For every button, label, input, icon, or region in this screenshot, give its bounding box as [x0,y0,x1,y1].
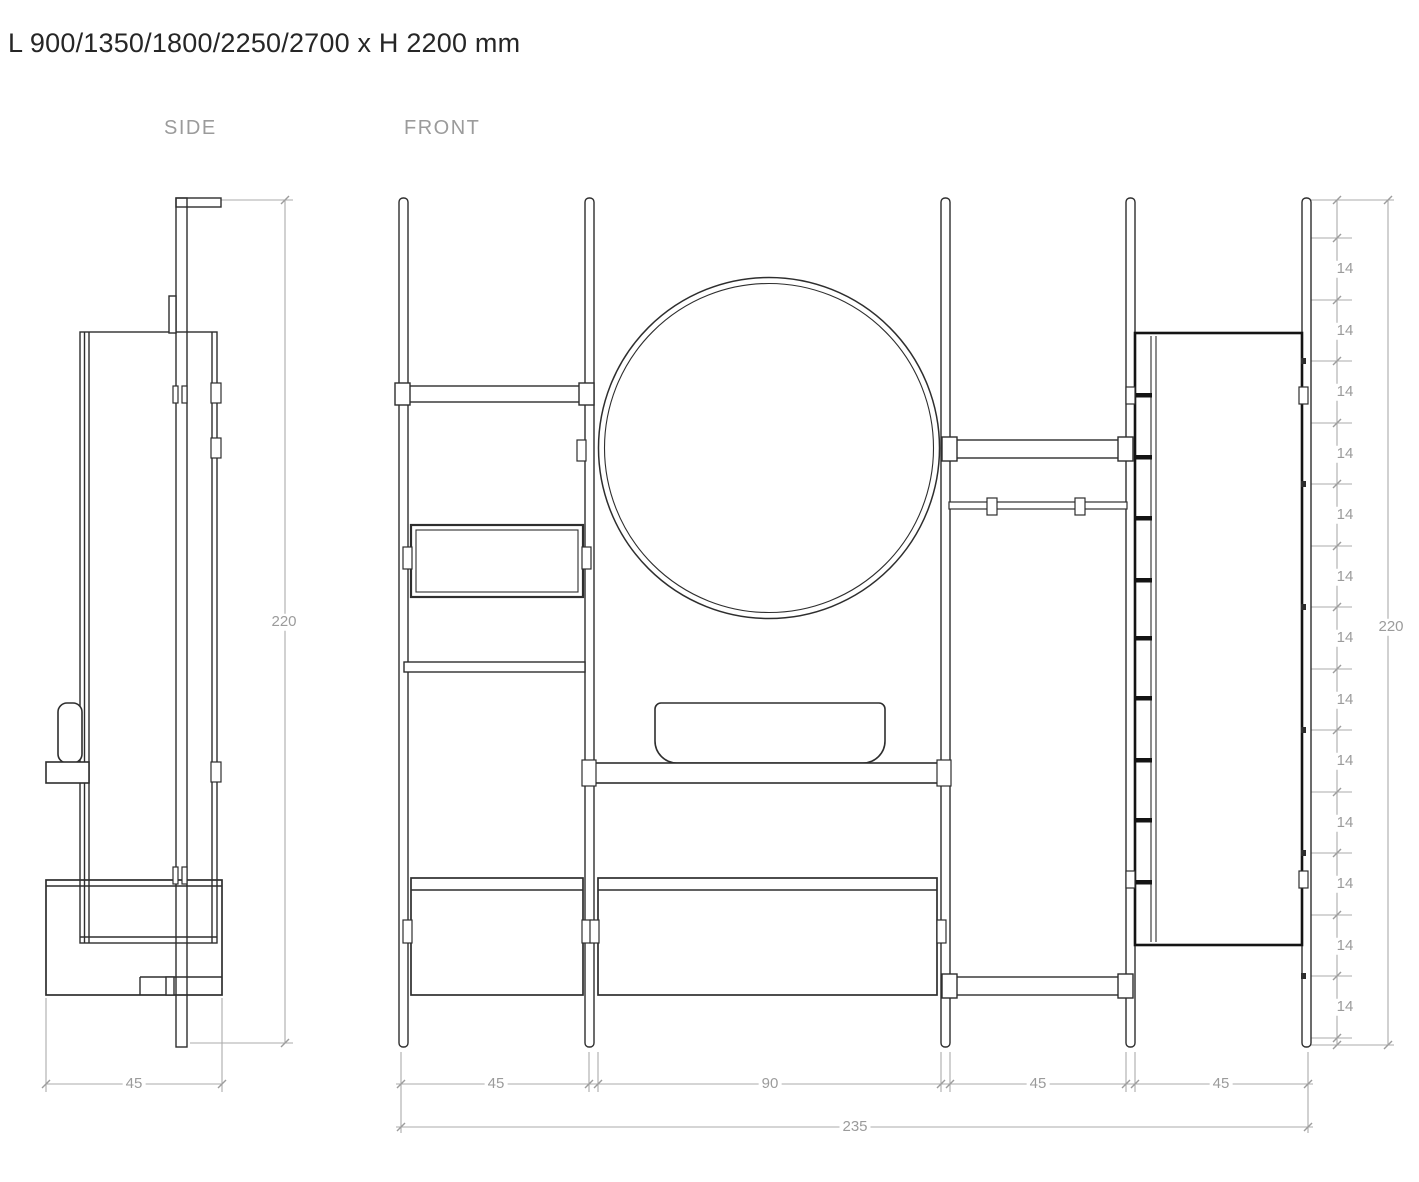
dim-pitch: 14 [1334,753,1357,770]
front-section-wardrobe-open [942,437,1133,998]
dim-pitch: 14 [1334,323,1357,340]
dim-pitch: 14 [1334,507,1357,524]
side-mounting-pins [173,383,221,884]
dim-pitch: 14 [1334,630,1357,647]
front-section-tall-cabinet [1126,333,1308,979]
dim-side-height: 220 [268,614,299,631]
dim-front-height: 220 [1375,619,1406,636]
dim-pitch: 14 [1334,999,1357,1016]
furniture-elevation-drawing [0,0,1419,1182]
dim-front-section-2: 90 [759,1076,782,1093]
front-view-label: FRONT [404,117,480,140]
side-view-drawing [46,198,222,1047]
hanging-rail [949,502,1127,509]
dim-pitch: 14 [1334,446,1357,463]
dim-pitch: 14 [1334,384,1357,401]
dim-pitch: 14 [1334,692,1357,709]
technical-drawing-page: L 900/1350/1800/2250/2700 x H 2200 mm SI… [0,0,1419,1182]
front-section-vanity [577,278,951,996]
front-mirror-cabinet [411,525,583,597]
front-section-shelving [395,383,594,995]
page-title: L 900/1350/1800/2250/2700 x H 2200 mm [8,28,520,59]
dim-front-section-3: 45 [1027,1076,1050,1093]
rail-hook [1075,498,1085,515]
round-mirror [599,278,940,619]
dim-pitch: 14 [1334,261,1357,278]
washbasin [655,703,885,763]
side-basin-profile [58,703,82,763]
dim-pitch: 14 [1334,569,1357,586]
front-view-drawing [395,198,1311,1047]
front-right-end-panel [1302,198,1311,1047]
dim-pitch: 14 [1334,938,1357,955]
dim-pitch: 14 [1334,876,1357,893]
dim-side-depth: 45 [123,1076,146,1093]
front-drawer-unit-small [411,878,583,995]
dim-front-total: 235 [839,1119,870,1136]
side-countertop-profile [46,762,89,783]
countertop [589,763,949,783]
front-drawer-unit-wide [598,878,937,995]
dim-front-section-1: 45 [485,1076,508,1093]
dim-front-section-4: 45 [1210,1076,1233,1093]
side-view-label: SIDE [164,117,217,140]
rail-hook [987,498,997,515]
dim-pitch: 14 [1334,815,1357,832]
side-cabinet [80,332,217,943]
